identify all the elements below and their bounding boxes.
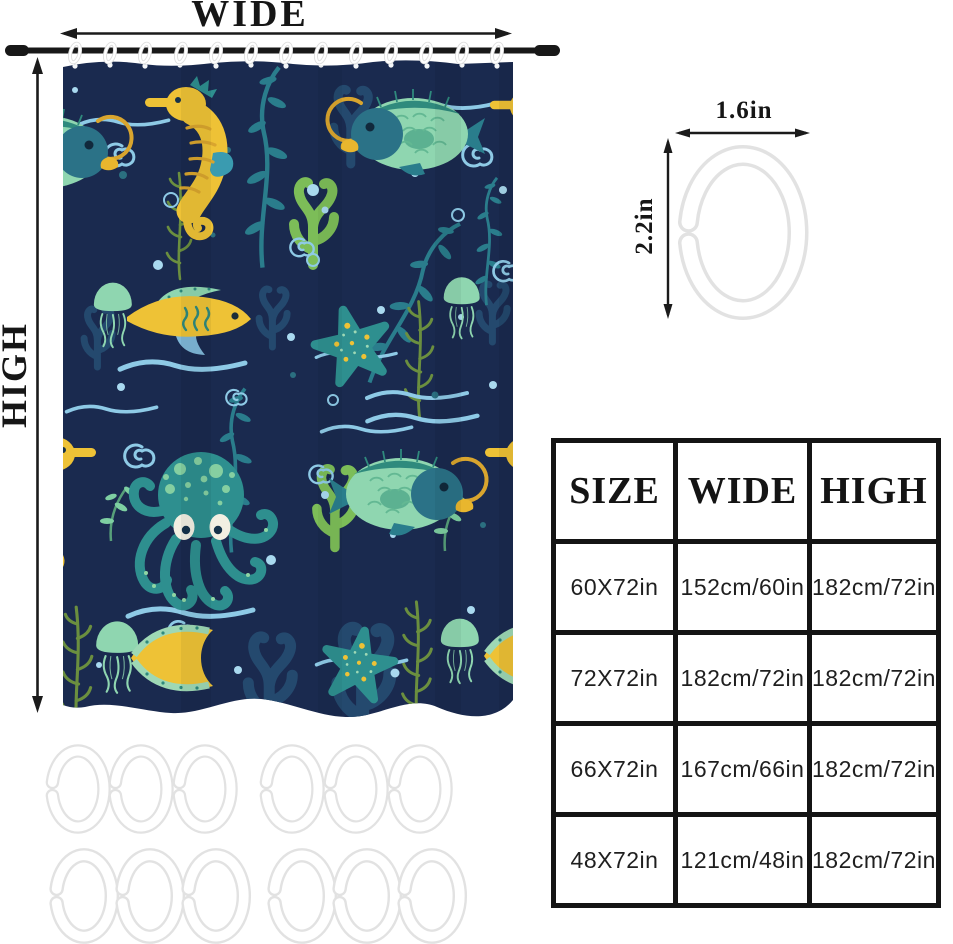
high-cell: 182cm/72in	[810, 724, 939, 815]
size-cell: 66X72in	[554, 724, 676, 815]
height-arrow	[32, 57, 43, 713]
high-cell: 182cm/72in	[810, 815, 939, 906]
table-row: 48X72in 121cm/48in 182cm/72in	[554, 815, 939, 906]
hooks-set-illustration	[52, 751, 459, 937]
curtain-hook-diagram	[664, 129, 811, 320]
size-cell: 48X72in	[554, 815, 676, 906]
size-table-header-row: SIZE WIDE HIGH	[554, 441, 939, 542]
table-row: 60X72in 152cm/60in 182cm/72in	[554, 542, 939, 633]
size-cell: 60X72in	[554, 542, 676, 633]
hook-illustration	[689, 156, 799, 310]
table-row: 72X72in 182cm/72in 182cm/72in	[554, 633, 939, 724]
size-table-header-high: HIGH	[810, 441, 939, 542]
width-arrow	[60, 28, 512, 39]
table-row: 66X72in 167cm/66in 182cm/72in	[554, 724, 939, 815]
size-cell: 72X72in	[554, 633, 676, 724]
wide-cell: 152cm/60in	[676, 542, 810, 633]
wide-cell: 121cm/48in	[676, 815, 810, 906]
size-table-header-size: SIZE	[554, 441, 676, 542]
wide-cell: 182cm/72in	[676, 633, 810, 724]
wide-cell: 167cm/66in	[676, 724, 810, 815]
hook-width-arrow	[675, 129, 810, 138]
hook-height-arrow	[664, 138, 673, 319]
size-table-header-wide: WIDE	[676, 441, 810, 542]
product-infographic: WIDE HIGH 1.6in 2.2in	[0, 0, 953, 944]
size-table: SIZE WIDE HIGH 60X72in 152cm/60in 182cm/…	[551, 438, 941, 908]
high-cell: 182cm/72in	[810, 633, 939, 724]
high-cell: 182cm/72in	[810, 542, 939, 633]
